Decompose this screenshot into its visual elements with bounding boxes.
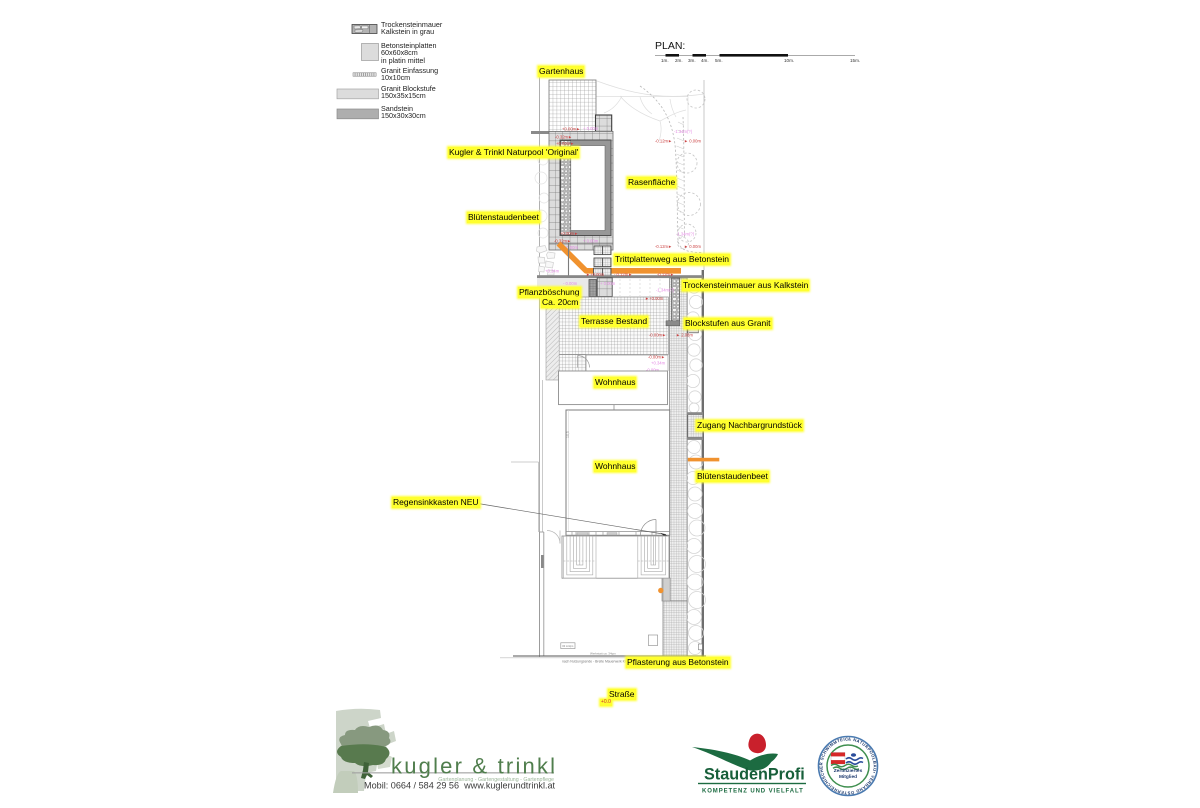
svg-text:► 0.00m: ► 0.00m bbox=[684, 139, 701, 144]
svg-text:1m.: 1m. bbox=[661, 58, 669, 63]
svg-text:-0.32m►: -0.32m► bbox=[555, 135, 572, 140]
svg-text:►+0.00m: ►+0.00m bbox=[645, 296, 664, 301]
svg-text:10,5: 10,5 bbox=[566, 431, 570, 438]
svg-text:+0.34m: +0.34m bbox=[651, 361, 666, 366]
svg-text:-1.34m(?): -1.34m(?) bbox=[656, 288, 675, 293]
svg-text:4m.: 4m. bbox=[701, 58, 709, 63]
svg-text:+0.00m►: +0.00m► bbox=[562, 127, 580, 132]
svg-text:15m.: 15m. bbox=[850, 58, 860, 63]
svg-text:Mitglied: Mitglied bbox=[839, 774, 857, 780]
svg-text:3m.: 3m. bbox=[688, 58, 696, 63]
svg-text:Werkstatt ca. 34qm: Werkstatt ca. 34qm bbox=[590, 651, 616, 655]
svg-text:StaudenProfi: StaudenProfi bbox=[704, 766, 805, 784]
svg-text:-0.12m►: -0.12m► bbox=[655, 139, 672, 144]
svg-text:00 m²/qm: 00 m²/qm bbox=[562, 644, 573, 648]
svg-text:-0.12m►: -0.12m► bbox=[657, 272, 674, 277]
svg-text:-1.34m(?): -1.34m(?) bbox=[674, 129, 693, 134]
svg-text:-0.00m►: -0.00m► bbox=[649, 333, 666, 338]
svg-text:kugler & trinkl: kugler & trinkl bbox=[391, 754, 557, 779]
svg-text:-1.34m(?): -1.34m(?) bbox=[676, 232, 695, 237]
svg-text:5m.: 5m. bbox=[715, 58, 723, 63]
svg-text:+ 0.00m: + 0.00m bbox=[600, 281, 616, 286]
svg-text:+0.00m►: +0.00m► bbox=[556, 141, 574, 146]
svg-text:- 0.00m: - 0.00m bbox=[563, 281, 578, 286]
svg-text:► 0.00m: ► 0.00m bbox=[684, 244, 701, 249]
svg-text:-0.12m►: -0.12m► bbox=[655, 244, 672, 249]
svg-text:+ 0.00m: + 0.00m bbox=[583, 126, 599, 131]
svg-text:Zertifiziertes: Zertifiziertes bbox=[834, 768, 863, 774]
svg-text:Mobil: 0664 / 584 29 56 www.k: Mobil: 0664 / 584 29 56 www.kuglerundtri… bbox=[364, 781, 556, 791]
svg-text:+0.34m: +0.34m bbox=[545, 269, 560, 274]
svg-text:►+0.00m: ►+0.00m bbox=[586, 272, 605, 277]
svg-text:-0.32m►: -0.32m► bbox=[554, 239, 571, 244]
svg-text:2m.: 2m. bbox=[675, 58, 683, 63]
svg-text:+0.00m►: +0.00m► bbox=[560, 231, 578, 236]
svg-text:► 2.08m: ► 2.08m bbox=[676, 333, 693, 338]
svg-text:KOMPETENZ UND VIELFALT: KOMPETENZ UND VIELFALT bbox=[702, 789, 804, 795]
svg-text:+ 0.00m: + 0.00m bbox=[583, 238, 599, 243]
svg-text:10m.: 10m. bbox=[784, 58, 794, 63]
svg-text:- 0.12m►: - 0.12m► bbox=[614, 272, 632, 277]
